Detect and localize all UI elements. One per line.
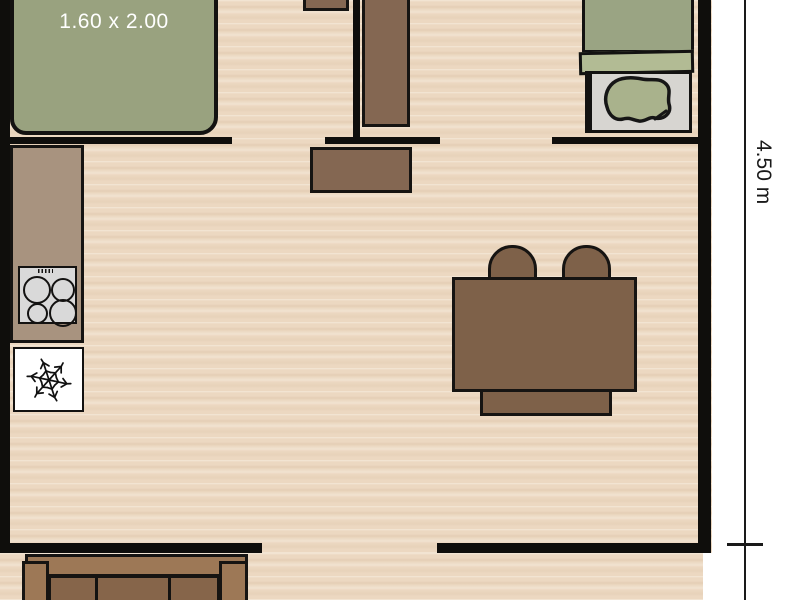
fridge bbox=[13, 347, 84, 412]
burner-icon bbox=[23, 276, 51, 304]
dimension-tick bbox=[727, 543, 763, 546]
burner-icon bbox=[49, 299, 77, 327]
sofa-cushions bbox=[48, 575, 220, 600]
dimension-label: 4.50 m bbox=[751, 140, 775, 216]
cushion-divider bbox=[168, 578, 171, 600]
wardrobe bbox=[362, 0, 410, 127]
floor-plan: 1.60 x 2.00 bbox=[0, 0, 800, 600]
wall-right bbox=[698, 0, 711, 553]
bedside-table bbox=[303, 0, 349, 11]
wall-left bbox=[0, 0, 10, 553]
double-bed: 1.60 x 2.00 bbox=[10, 0, 218, 135]
pillow-icon bbox=[598, 74, 682, 128]
dining-table bbox=[452, 277, 637, 392]
sofa-backrest bbox=[25, 554, 248, 577]
wall-bottom-right bbox=[437, 543, 711, 553]
wall-bottom-left bbox=[0, 543, 262, 553]
sofa-armrest bbox=[219, 561, 248, 600]
wall-partition-vertical bbox=[353, 0, 360, 144]
wall-partition-c bbox=[552, 137, 711, 144]
single-bed-mattress bbox=[582, 0, 694, 53]
dresser bbox=[310, 147, 412, 193]
burner-icon bbox=[27, 303, 48, 324]
bed-size-label: 1.60 x 2.00 bbox=[14, 10, 214, 34]
wall-partition-b bbox=[325, 137, 440, 144]
snowflake-icon bbox=[26, 357, 72, 403]
hob-control-icon bbox=[38, 269, 53, 273]
hob bbox=[18, 266, 77, 324]
sofa-armrest bbox=[22, 561, 49, 600]
dimension-line bbox=[744, 0, 746, 600]
cushion-divider bbox=[95, 578, 98, 600]
wall-partition-a bbox=[0, 137, 232, 144]
